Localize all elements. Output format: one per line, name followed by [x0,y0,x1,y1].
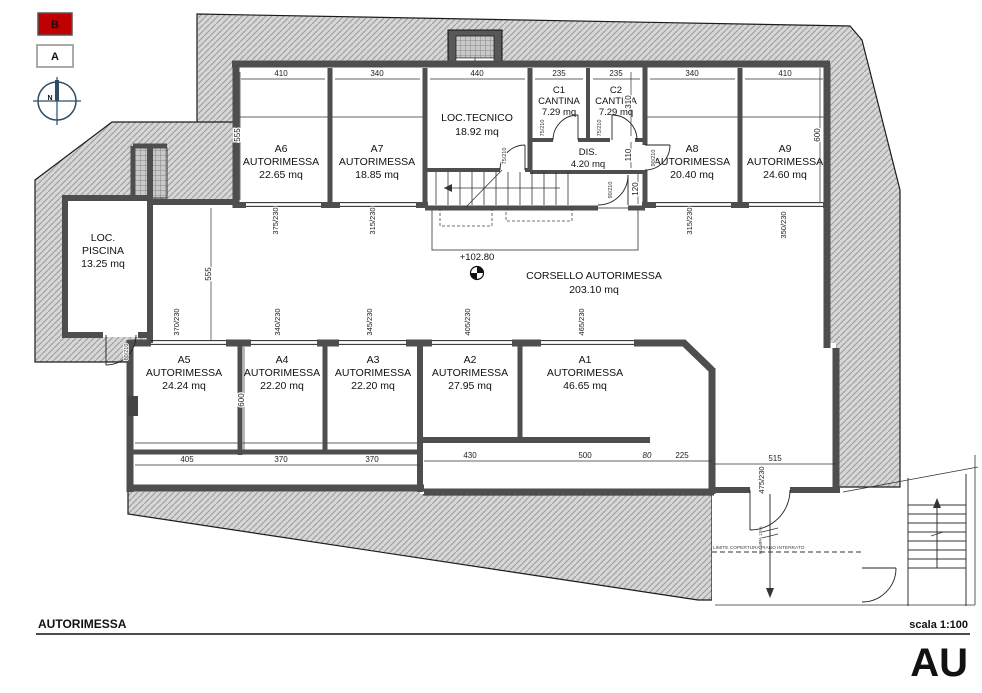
svg-text:7.29 mq: 7.29 mq [542,107,576,118]
svg-text:46.65 mq: 46.65 mq [563,380,607,392]
sheet-title: AUTORIMESSA [38,617,127,631]
dim-bottom-80: 80 [643,451,652,460]
dim-v-600-a9: 600 [813,128,822,142]
level-value: +102.80 [460,252,495,263]
svg-text:A2: A2 [464,354,477,366]
north-compass: N [33,77,81,125]
svg-text:24.24 mq: 24.24 mq [162,380,206,392]
svg-text:A4: A4 [276,354,289,366]
dim-bottom-515: 515 [768,454,782,463]
section-marker-a: A [51,51,59,63]
svg-text:A6: A6 [275,143,288,155]
svg-text:4.20 mq: 4.20 mq [571,159,605,170]
dim-bottom-225: 225 [675,451,689,460]
dim-door-a1: 465/230 [577,308,586,335]
dim-door-a5: 370/230 [172,308,181,335]
dim-ramp-door: 475/230 [757,466,766,493]
svg-text:A3: A3 [367,354,380,366]
drawing-sheet: LIMITE COPERTURA PIANO INTERRATO RAMPA 1… [0,0,982,693]
svg-text:22.20 mq: 22.20 mq [351,380,395,392]
dim-bottom-a5: 405 [180,455,194,464]
svg-text:20.40 mq: 20.40 mq [670,169,714,181]
svg-text:A7: A7 [371,143,384,155]
dim-top-a9: 410 [778,69,792,78]
dim-top-a7: 340 [370,69,384,78]
svg-text:DIS.: DIS. [579,147,597,158]
dim-v-120: 120 [631,182,640,196]
dim-top-a8: 340 [685,69,699,78]
door-label-piscina: 80/210 [124,344,130,361]
svg-text:C2: C2 [610,85,622,96]
svg-text:CORSELLO AUTORIMESSA: CORSELLO AUTORIMESSA [526,270,662,282]
floor-plan-drawing: LIMITE COPERTURA PIANO INTERRATO RAMPA 1… [0,0,982,693]
dim-v-555-a6: 555 [233,128,242,142]
dim-bottom-a1: 500 [578,451,592,460]
svg-text:LOC.: LOC. [91,232,116,244]
door-label-lt: 75/210 [502,148,508,165]
title-block: AUTORIMESSA scala 1:100 AU [36,617,970,685]
roof-shaft-grate [456,36,494,58]
svg-text:C1: C1 [553,85,565,96]
dim-door-a6: 375/230 [271,207,280,234]
dim-bottom-a2: 430 [463,451,477,460]
door-label-dis: 90/210 [651,150,657,167]
svg-text:CANTINA: CANTINA [538,96,580,107]
svg-text:LOC.TECNICO: LOC.TECNICO [441,112,513,124]
dim-v-600-a4: 600 [237,393,246,407]
svg-text:AUTORIMESSA: AUTORIMESSA [146,367,222,379]
dim-door-a3: 345/230 [365,308,374,335]
svg-text:AUTORIMESSA: AUTORIMESSA [243,156,319,168]
north-letter: N [47,95,52,102]
svg-text:AUTORIMESSA: AUTORIMESSA [654,156,730,168]
svg-text:AUTORIMESSA: AUTORIMESSA [244,367,320,379]
svg-text:AUTORIMESSA: AUTORIMESSA [747,156,823,168]
dim-v-555-corsello: 555 [204,267,213,281]
dim-door-a7: 315/230 [368,207,377,234]
dim-v-110: 110 [624,148,633,161]
dim-door-a2: 405/230 [463,308,472,335]
svg-text:AUTORIMESSA: AUTORIMESSA [432,367,508,379]
door-label-stairhall: 90/210 [608,182,614,199]
earth-bottom-band [128,488,712,600]
dim-top-c1: 235 [552,69,566,78]
dim-top-c2: 235 [609,69,623,78]
door-label-c2: 75/210 [597,120,603,137]
svg-text:18.92 mq: 18.92 mq [455,126,499,138]
dim-door-a9: 350/230 [779,211,788,238]
dim-bottom-a4: 370 [274,455,288,464]
ramp-note: RAMPA 15% [758,526,764,554]
svg-text:27.95 mq: 27.95 mq [448,380,492,392]
svg-text:22.65 mq: 22.65 mq [259,169,303,181]
svg-text:A5: A5 [178,354,191,366]
svg-text:AUTORIMESSA: AUTORIMESSA [335,367,411,379]
floor-corsello [150,202,830,345]
svg-text:22.20 mq: 22.20 mq [260,380,304,392]
svg-text:A9: A9 [779,143,792,155]
svg-text:203.10 mq: 203.10 mq [569,284,619,296]
dim-door-a8: 315/230 [685,207,694,234]
dim-bottom-a3: 370 [365,455,379,464]
svg-text:A8: A8 [686,143,699,155]
sheet-code: AU [910,641,968,685]
north-needle [55,80,59,101]
svg-text:13.25 mq: 13.25 mq [81,258,125,270]
svg-text:24.60 mq: 24.60 mq [763,169,807,181]
svg-text:AUTORIMESSA: AUTORIMESSA [339,156,415,168]
dim-v-310: 310 [624,95,633,109]
section-marker-b: B [51,19,59,31]
section-markers: B A [37,13,73,67]
svg-text:AUTORIMESSA: AUTORIMESSA [547,367,623,379]
svg-text:PISCINA: PISCINA [82,245,124,257]
svg-text:A1: A1 [579,354,592,366]
dim-door-a4: 340/230 [273,308,282,335]
dim-top-lt: 440 [470,69,484,78]
sheet-scale: scala 1:100 [909,619,968,631]
svg-text:18.85 mq: 18.85 mq [355,169,399,181]
dim-top-a6: 410 [274,69,288,78]
a5-side-door [128,396,138,416]
door-label-c1: 75/210 [540,120,546,137]
